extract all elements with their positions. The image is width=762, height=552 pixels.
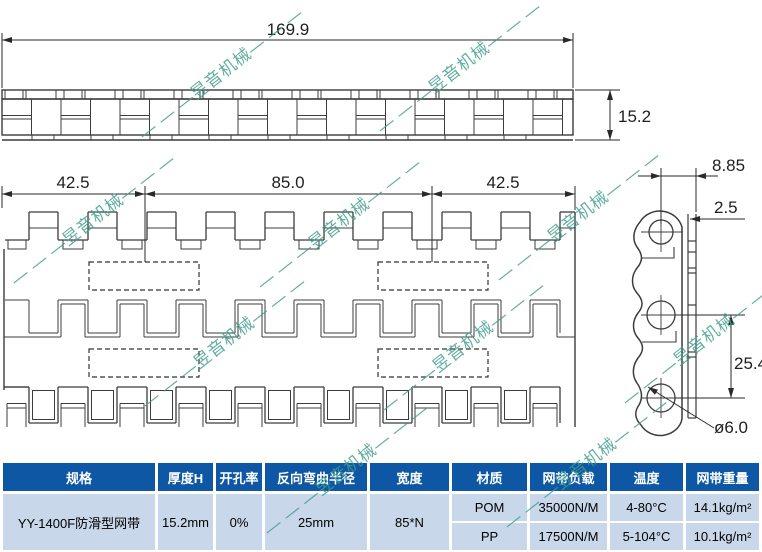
hidden-slots bbox=[89, 262, 488, 377]
dim-total-width: 169.9 bbox=[267, 20, 310, 39]
cell-weight-pp: 10.1kg/m² bbox=[686, 523, 759, 550]
drawing-rect bbox=[386, 135, 408, 140]
cell-load-pom: 35000N/M bbox=[530, 494, 607, 521]
col-header-spec: 规格 bbox=[3, 463, 155, 491]
cell-material-pom: POM bbox=[452, 494, 527, 521]
page: 169.9 15.2 42.5 85.0 42.5 8.85 2.5 25.4 … bbox=[0, 0, 762, 552]
drawing-rect bbox=[122, 240, 142, 249]
cell-material-pp: PP bbox=[452, 523, 527, 550]
dim-right-pitch: 42.5 bbox=[486, 173, 519, 192]
drawing-rect bbox=[268, 135, 290, 140]
hidden-slot bbox=[378, 349, 488, 377]
drawing-rect bbox=[446, 391, 468, 420]
col-header-width: 宽度 bbox=[370, 463, 449, 491]
belt-geometry bbox=[2, 90, 575, 427]
drawing-rect bbox=[210, 391, 232, 420]
drawing-rect bbox=[91, 135, 113, 140]
drawing-rect bbox=[63, 240, 83, 249]
spec-table-header: 规格 厚度H 开孔率 反向弯曲半径 宽度 材质 网带负载 温度 网带重量 bbox=[3, 463, 759, 491]
drawing-rect bbox=[269, 391, 291, 420]
drawing-rect bbox=[445, 135, 467, 140]
drawing-rect bbox=[240, 240, 260, 249]
cell-bend-radius: 25mm bbox=[265, 494, 367, 550]
dim-center-pitch: 85.0 bbox=[271, 173, 304, 192]
cell-spec-name: YY-1400F防滑型网带 bbox=[3, 494, 155, 550]
dim-side-width: 8.85 bbox=[712, 156, 745, 175]
drawing-rect bbox=[358, 240, 378, 249]
drawing-rect bbox=[32, 135, 54, 140]
drawing-rect bbox=[151, 391, 173, 420]
cell-temperature-pom: 4-80°C bbox=[610, 494, 683, 521]
dim-thickness: 15.2 bbox=[618, 107, 651, 126]
cell-load-pp: 17500N/M bbox=[530, 523, 607, 550]
spec-table-body: YY-1400F防滑型网带 15.2mm 0% 25mm 85*N POM 35… bbox=[3, 494, 759, 550]
drawing-rect bbox=[417, 240, 437, 249]
cell-open-rate: 0% bbox=[216, 494, 262, 550]
dim-hole-diameter: ø6.0 bbox=[714, 418, 748, 437]
drawing-rect bbox=[92, 391, 114, 420]
technical-drawing: 169.9 15.2 42.5 85.0 42.5 8.85 2.5 25.4 … bbox=[0, 0, 762, 460]
drawing-rect bbox=[476, 240, 496, 249]
cell-width: 85*N bbox=[370, 494, 449, 550]
col-header-weight: 网带重量 bbox=[686, 463, 759, 491]
side-view bbox=[633, 211, 697, 435]
col-header-bend-radius: 反向弯曲半径 bbox=[265, 463, 367, 491]
drawing-rect bbox=[327, 135, 349, 140]
col-header-open-rate: 开孔率 bbox=[216, 463, 262, 491]
drawing-rect bbox=[8, 240, 26, 249]
drawing-rect bbox=[505, 391, 527, 420]
drawing-rect bbox=[299, 240, 319, 249]
col-header-material: 材质 bbox=[452, 463, 527, 491]
hidden-slot bbox=[378, 262, 488, 290]
drawing-rect bbox=[328, 391, 350, 420]
drawing-rect bbox=[209, 135, 231, 140]
hidden-slot bbox=[89, 262, 199, 290]
drawing-rect bbox=[504, 135, 526, 140]
drawing-rect bbox=[535, 240, 555, 249]
hinge-plate bbox=[688, 214, 696, 418]
drawing-rect bbox=[387, 391, 409, 420]
hidden-slot bbox=[89, 349, 199, 377]
drawing-rect bbox=[2, 90, 573, 99]
side-view-steps bbox=[642, 247, 676, 342]
dim-left-pitch: 42.5 bbox=[56, 173, 89, 192]
drawing-rect bbox=[2, 99, 573, 135]
col-header-thickness: 厚度H bbox=[158, 463, 213, 491]
drawing-rect bbox=[150, 135, 172, 140]
drawing-rect bbox=[33, 391, 55, 420]
col-header-temperature: 温度 bbox=[610, 463, 683, 491]
drawing-rect bbox=[181, 240, 201, 249]
spec-table: 规格 厚度H 开孔率 反向弯曲半径 宽度 材质 网带负载 温度 网带重量 YY-… bbox=[3, 463, 759, 550]
col-header-load: 网带负载 bbox=[530, 463, 607, 491]
dim-plate-thickness: 2.5 bbox=[714, 198, 738, 217]
cell-temperature-pp: 5-104°C bbox=[610, 523, 683, 550]
cell-thickness: 15.2mm bbox=[158, 494, 213, 550]
side-view-left-edge bbox=[633, 222, 643, 425]
cell-weight-pom: 14.1kg/m² bbox=[686, 494, 759, 521]
dim-hole-pitch: 25.4 bbox=[734, 354, 762, 373]
